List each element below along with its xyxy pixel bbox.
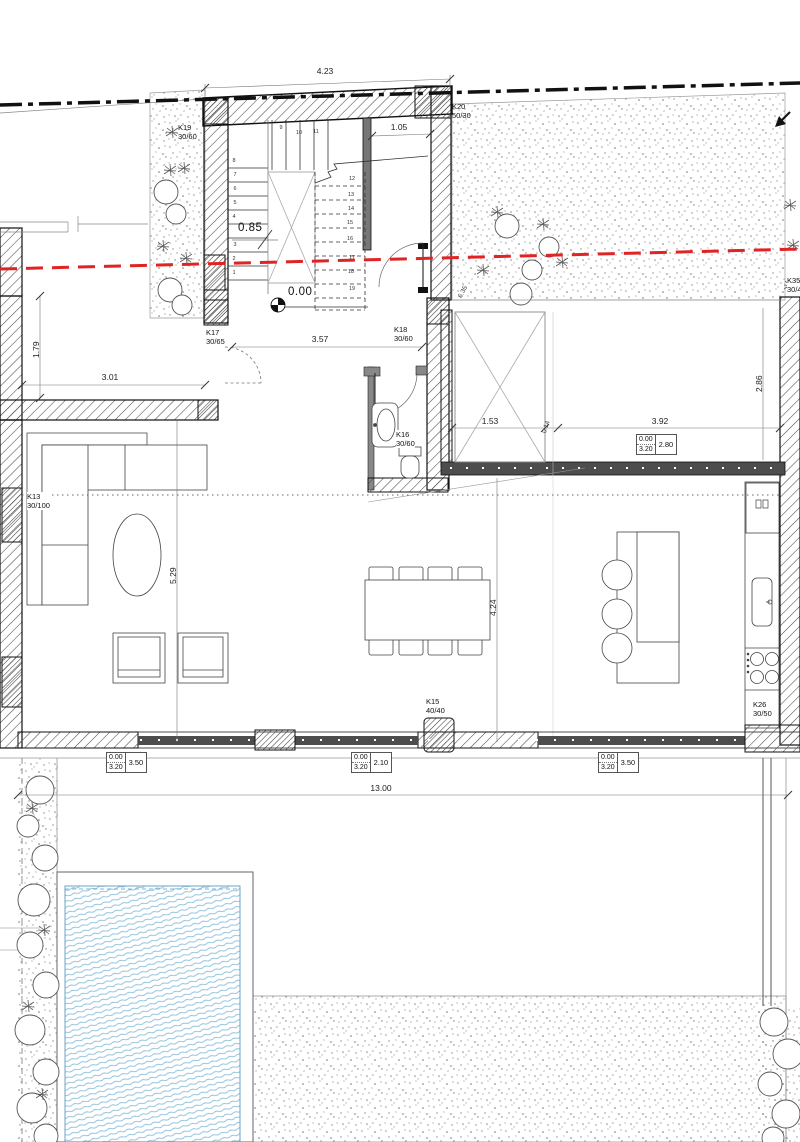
step-number: 14 — [348, 206, 354, 212]
south-facade — [18, 718, 800, 752]
head-level: 3.20 — [107, 762, 125, 772]
sofa — [27, 433, 207, 605]
column-label-k19: K1930/60 — [178, 123, 197, 141]
column-label-k26: K2630/50 — [753, 700, 772, 718]
dim-hall-width: 3.57 — [312, 334, 329, 344]
sill-level: 0.00 — [107, 753, 125, 762]
level-landing: 0.85 — [238, 222, 262, 234]
dining-set — [365, 567, 490, 655]
step-number: 9 — [279, 125, 282, 131]
step-number: 1 — [232, 270, 235, 276]
dim-total-width: 13.00 — [370, 783, 391, 793]
level-ground: 0.00 — [288, 286, 312, 298]
step-number: 18 — [348, 269, 354, 275]
step-number: 16 — [347, 236, 353, 242]
step-number: 17 — [349, 255, 355, 261]
step-number: 3 — [233, 242, 236, 248]
patio-void — [452, 300, 780, 742]
sill-level: 0.00 — [352, 753, 370, 762]
step-number: 5 — [233, 200, 236, 206]
staircase — [228, 120, 428, 310]
step-number: 12 — [349, 176, 355, 182]
window-tag-left: 0.00 3.20 3.50 — [106, 752, 147, 773]
head-level: 3.20 — [599, 762, 617, 772]
step-number: 13 — [348, 192, 354, 198]
dim-vestibule-width: 1.05 — [391, 122, 408, 132]
dim-patio-width: 3.92 — [652, 416, 669, 426]
dim-porch-height: 1.79 — [31, 341, 41, 358]
window-width: 2.80 — [656, 435, 677, 454]
floor-plan-svg — [0, 0, 800, 1142]
column-label-k20: K2050/30 — [452, 102, 471, 120]
dim-patio-height: 2.86 — [754, 375, 764, 392]
head-level: 3.20 — [637, 444, 655, 454]
step-number: 4 — [232, 214, 235, 220]
column-label-k15: K1540/40 — [426, 697, 445, 715]
column-label-k13: K1330/100 — [27, 492, 50, 510]
window-width: 3.50 — [618, 753, 639, 772]
window-tag-center: 0.00 3.20 2.10 — [351, 752, 392, 773]
sill-level: 0.00 — [599, 753, 617, 762]
window-width: 2.10 — [371, 753, 392, 772]
step-number: 6 — [233, 186, 236, 192]
step-number: 2 — [232, 256, 235, 262]
head-level: 3.20 — [352, 762, 370, 772]
column-label-k17: K1730/65 — [206, 328, 225, 346]
kitchen — [602, 482, 779, 728]
dim-living-height: 5.29 — [168, 567, 178, 584]
step-number: 8 — [232, 158, 235, 164]
sill-level: 0.00 — [637, 435, 655, 444]
armchairs — [113, 633, 228, 683]
step-number: 7 — [233, 172, 236, 178]
dim-dining-height: 4.24 — [488, 599, 498, 616]
dim-top-width: 4.23 — [317, 66, 334, 76]
dim-porch-width: 3.01 — [102, 372, 119, 382]
column-label-k35: K3530/40 — [787, 276, 800, 294]
floor-plan: 4.23 1.05 3.57 3.01 1.79 1.53 0.14 3.92 … — [0, 0, 800, 1142]
step-number: 15 — [347, 220, 353, 226]
step-number: 11 — [313, 129, 319, 135]
step-number: 10 — [296, 130, 302, 136]
column-label-k16: K1630/60 — [396, 430, 415, 448]
column-label-k18: K1830/60 — [394, 325, 413, 343]
window-tag-patio: 0.00 3.20 2.80 — [636, 434, 677, 455]
step-number: 19 — [349, 286, 355, 292]
window-width: 3.50 — [126, 753, 147, 772]
coffee-table — [113, 514, 161, 596]
dim-void-width: 1.53 — [482, 416, 499, 426]
window-tag-right: 0.00 3.20 3.50 — [598, 752, 639, 773]
